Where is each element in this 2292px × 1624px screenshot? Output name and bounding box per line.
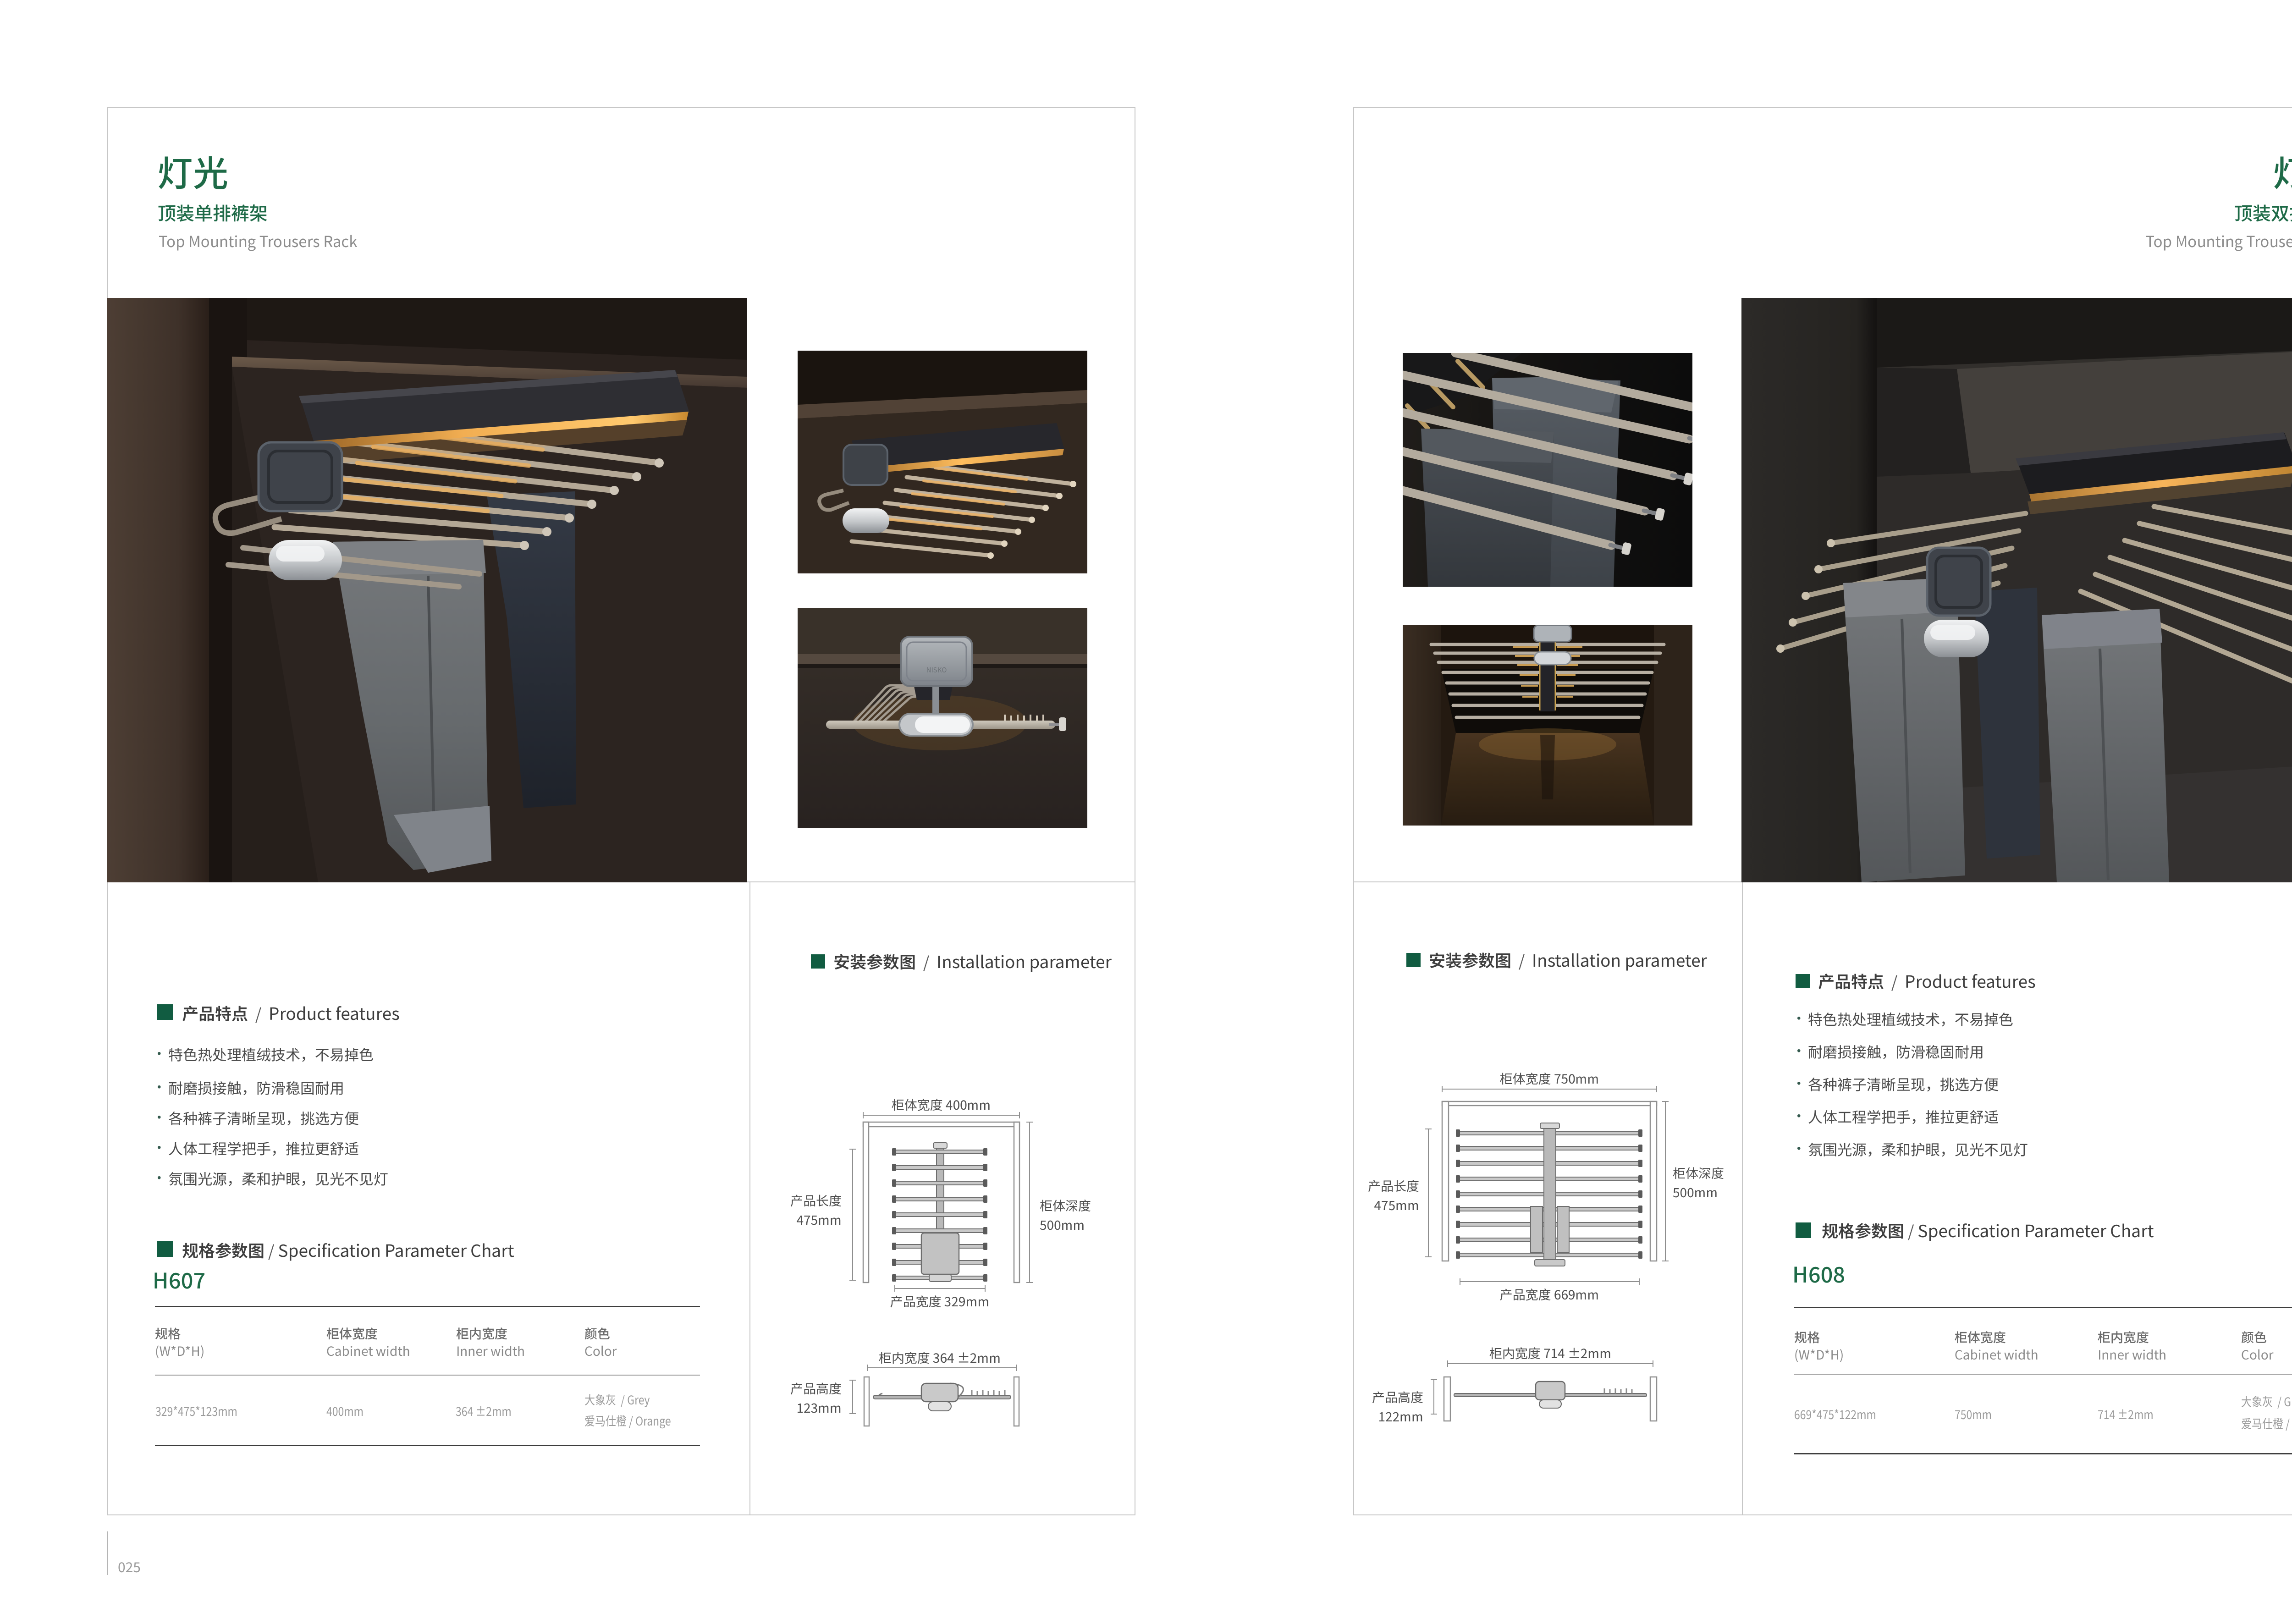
svg-text:产品高度: 产品高度 xyxy=(1372,1388,1423,1406)
svg-text:NISKO: NISKO xyxy=(926,665,947,675)
svg-text:产品宽度 329mm: 产品宽度 329mm xyxy=(890,1292,990,1310)
svg-text:产品高度: 产品高度 xyxy=(790,1379,842,1398)
svg-text:柜内宽度 714 ±2mm: 柜内宽度 714 ±2mm xyxy=(1489,1344,1612,1362)
svg-text:500mm: 500mm xyxy=(1673,1183,1718,1201)
svg-text:产品宽度 669mm: 产品宽度 669mm xyxy=(1500,1285,1599,1304)
svg-text:500mm: 500mm xyxy=(1040,1216,1085,1234)
svg-text:122mm: 122mm xyxy=(1378,1407,1423,1426)
svg-text:柜内宽度 364 ±2mm: 柜内宽度 364 ±2mm xyxy=(879,1349,1001,1367)
svg-text:柜体深度: 柜体深度 xyxy=(1040,1196,1091,1215)
svg-text:柜体深度: 柜体深度 xyxy=(1673,1164,1724,1182)
svg-text:475mm: 475mm xyxy=(1374,1196,1419,1214)
svg-text:柜体宽度 400mm: 柜体宽度 400mm xyxy=(892,1096,991,1114)
svg-text:产品长度: 产品长度 xyxy=(790,1191,842,1210)
svg-text:475mm: 475mm xyxy=(797,1211,842,1229)
svg-text:产品长度: 产品长度 xyxy=(1368,1177,1419,1195)
svg-text:柜体宽度 750mm: 柜体宽度 750mm xyxy=(1500,1069,1599,1088)
svg-text:123mm: 123mm xyxy=(797,1398,842,1417)
